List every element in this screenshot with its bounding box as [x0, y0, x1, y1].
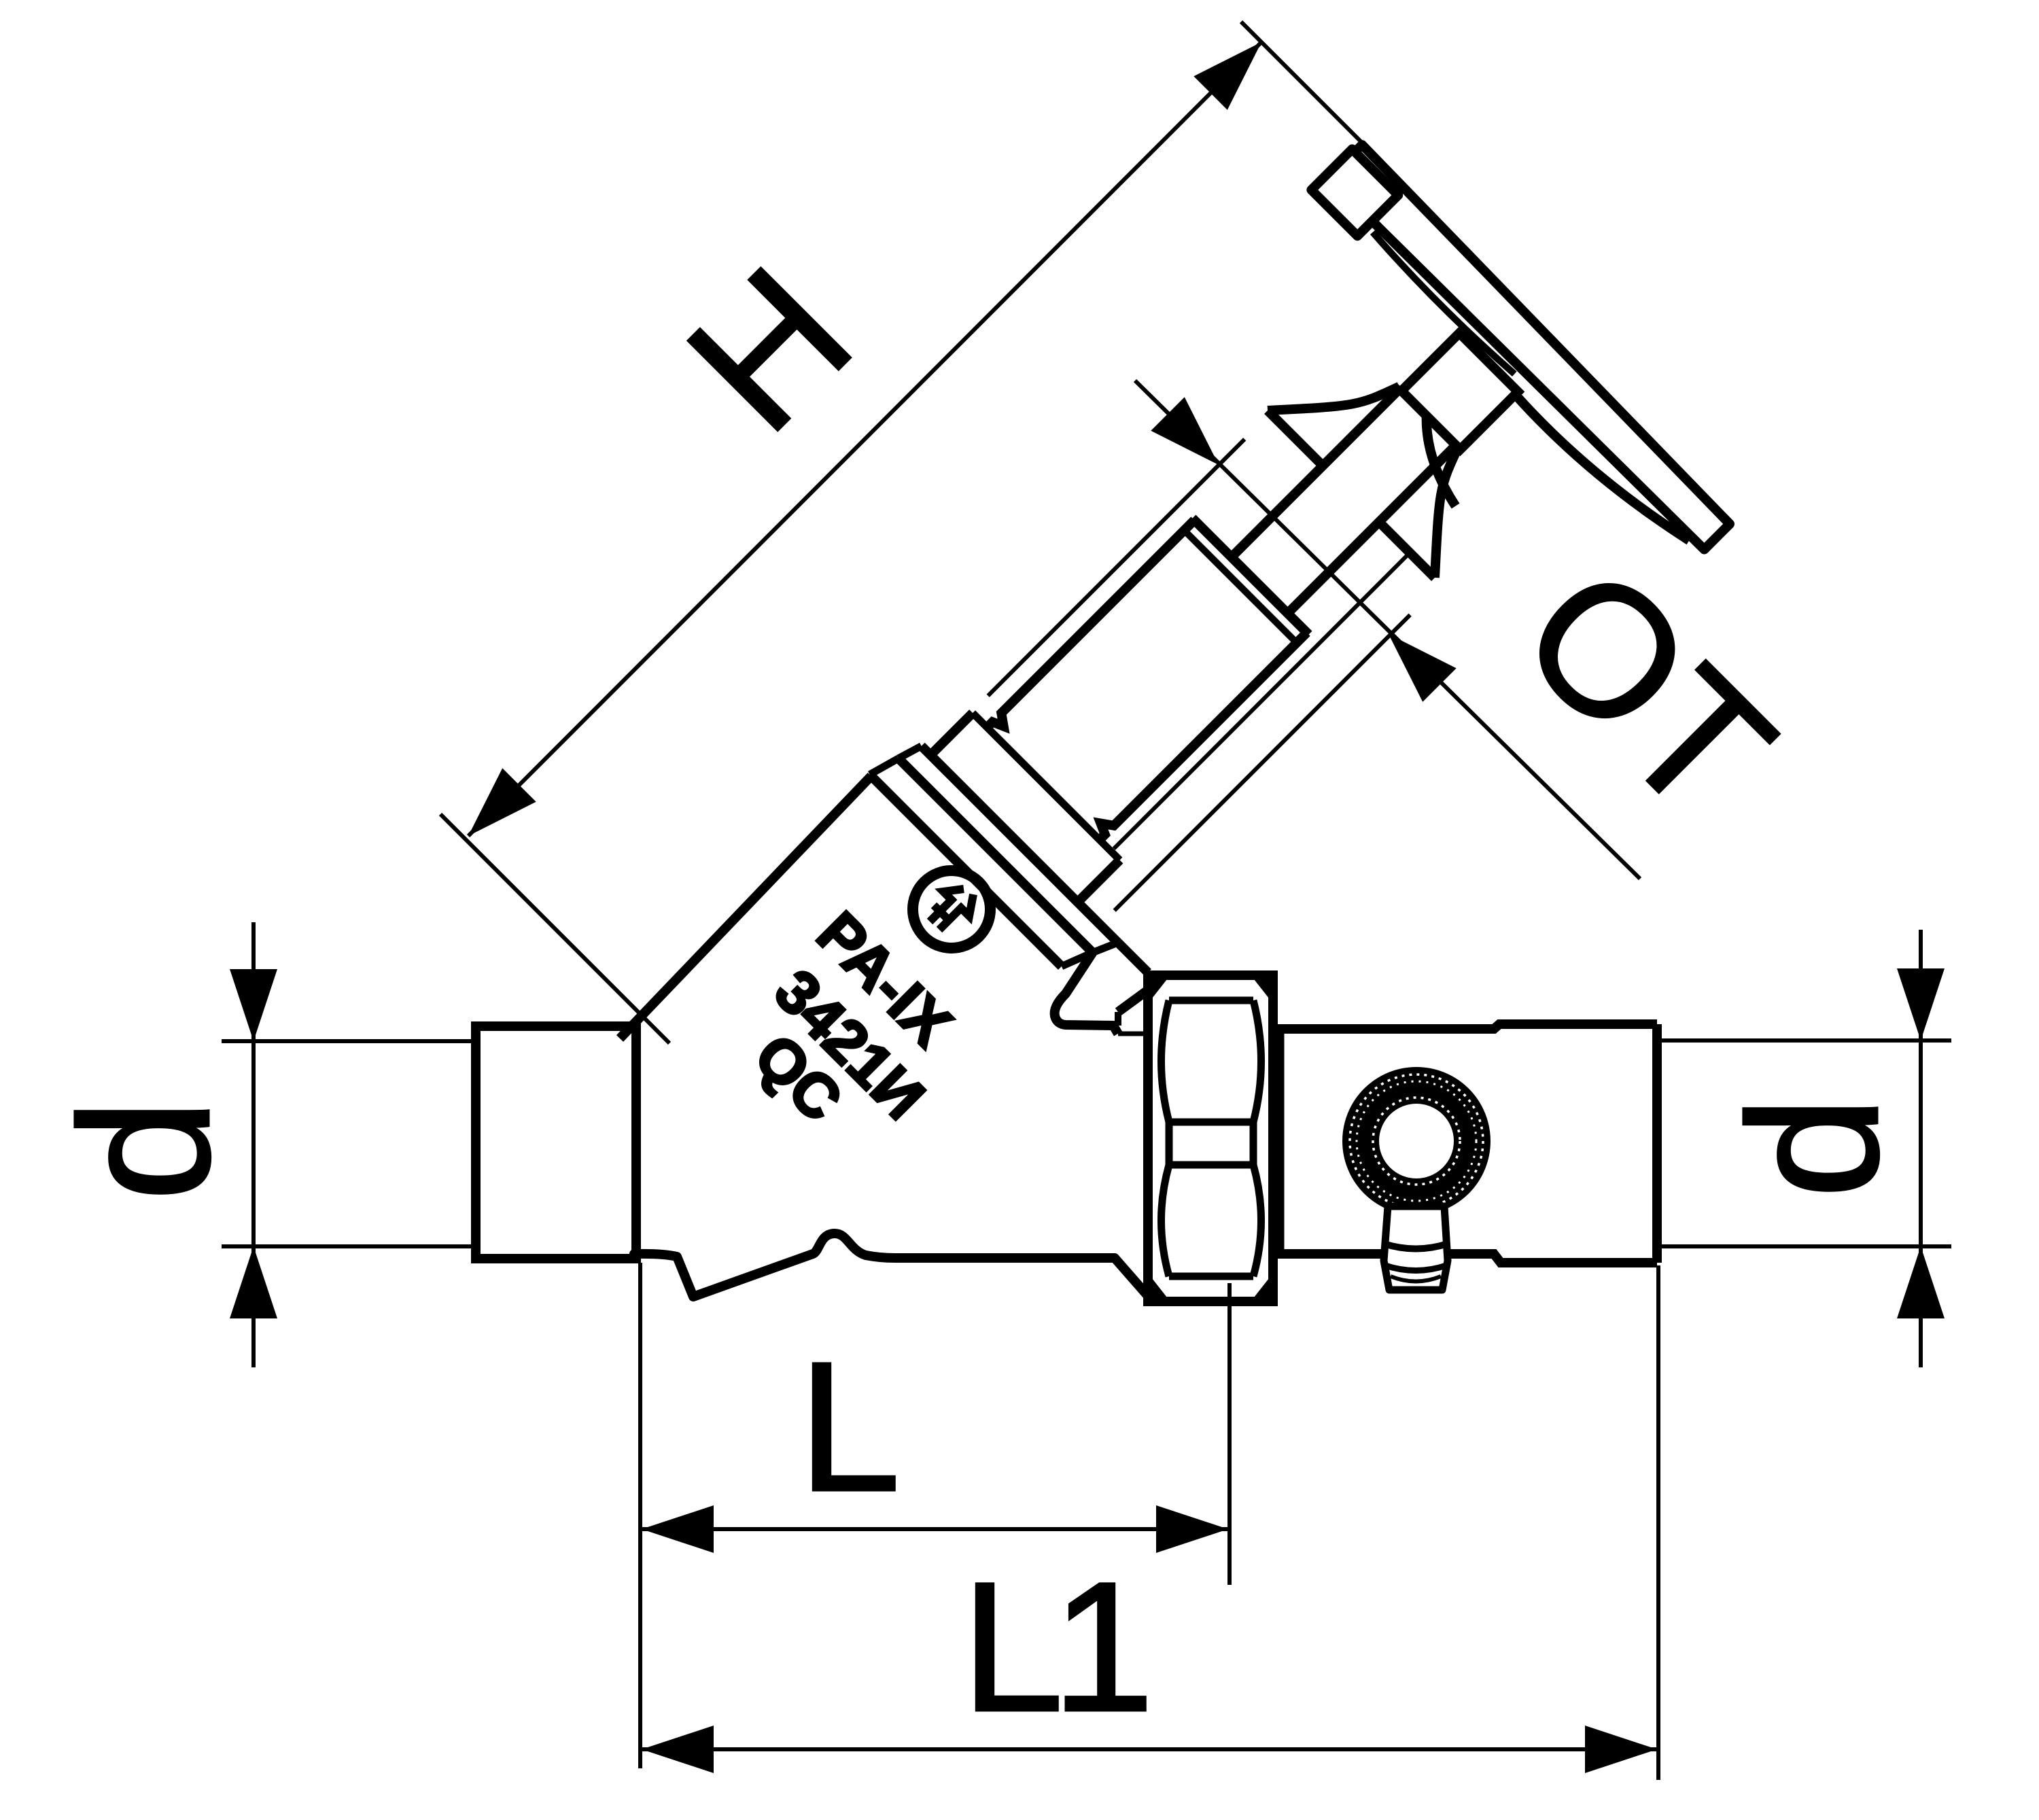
svg-text:d: d: [41, 1098, 248, 1201]
svg-text:L1: L1: [961, 1543, 1147, 1750]
svg-text:L: L: [798, 1323, 901, 1530]
svg-text:d: d: [1710, 1096, 1917, 1198]
